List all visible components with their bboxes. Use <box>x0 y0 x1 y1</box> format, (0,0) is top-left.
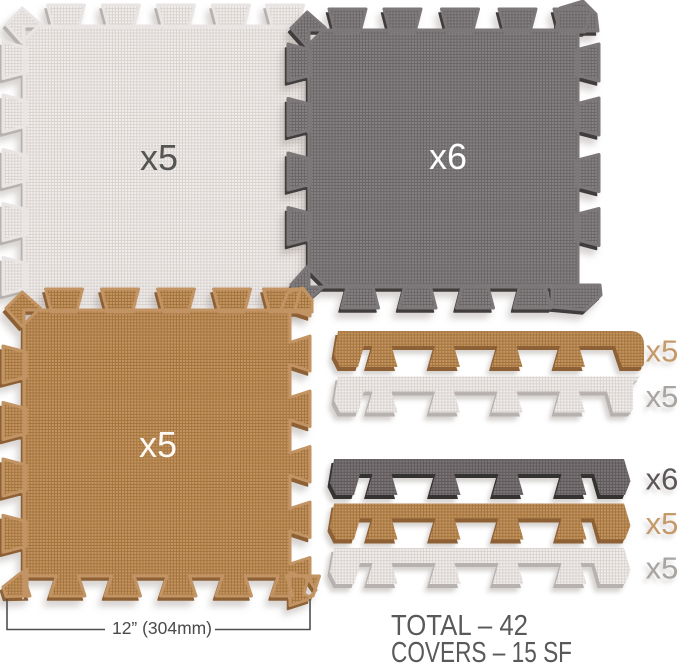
svg-text:x6: x6 <box>429 136 467 177</box>
svg-text:x5: x5 <box>139 424 177 465</box>
svg-text:x5: x5 <box>646 334 679 369</box>
svg-text:COVERS – 15 SF: COVERS – 15 SF <box>391 637 572 664</box>
svg-text:x5: x5 <box>646 379 679 414</box>
svg-text:x5: x5 <box>140 137 178 178</box>
svg-text:x6: x6 <box>646 462 679 497</box>
svg-text:x5: x5 <box>646 551 679 586</box>
svg-text:12” (304mm): 12” (304mm) <box>112 618 212 638</box>
svg-text:x5: x5 <box>646 506 679 541</box>
